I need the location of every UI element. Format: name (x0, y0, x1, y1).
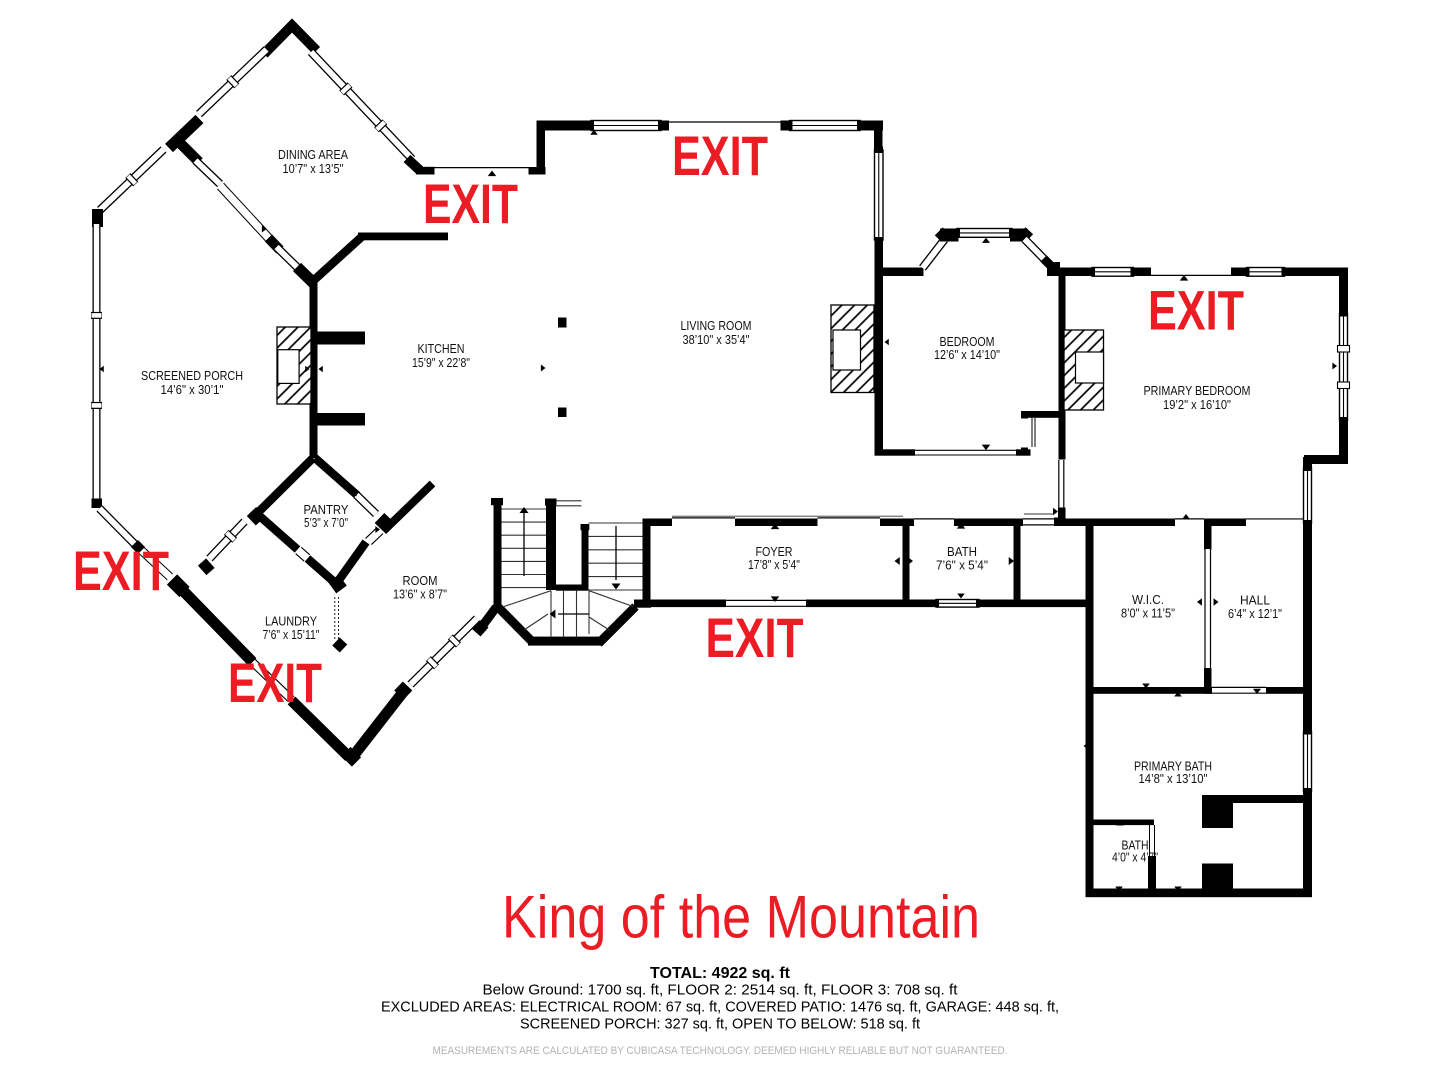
svg-text:DINING AREA: DINING AREA (278, 147, 348, 162)
svg-text:EXIT: EXIT (1148, 279, 1244, 342)
svg-text:12’6" x 14’10": 12’6" x 14’10" (934, 347, 1000, 362)
svg-text:19’2" x 16’10": 19’2" x 16’10" (1163, 397, 1231, 412)
svg-text:4’0" x 4’7": 4’0" x 4’7" (1112, 850, 1158, 865)
svg-text:15’9" x 22’8": 15’9" x 22’8" (412, 355, 470, 370)
svg-text:KITCHEN: KITCHEN (418, 341, 465, 356)
svg-text:EXIT: EXIT (672, 124, 768, 187)
svg-text:PRIMARY BEDROOM: PRIMARY BEDROOM (1144, 383, 1251, 398)
svg-text:8’0" x 11’5": 8’0" x 11’5" (1121, 606, 1175, 621)
svg-text:EXIT: EXIT (228, 651, 322, 714)
svg-text:38’10" x 35’4": 38’10" x 35’4" (683, 332, 750, 347)
svg-text:14’6" x 30’1": 14’6" x 30’1" (161, 382, 224, 397)
svg-text:6’4" x 12’1": 6’4" x 12’1" (1228, 606, 1282, 621)
svg-text:MEASUREMENTS ARE CALCULATED BY: MEASUREMENTS ARE CALCULATED BY CUBICASA … (433, 1045, 1008, 1057)
svg-text:EXIT: EXIT (706, 606, 804, 669)
svg-text:14’8" x 13’10": 14’8" x 13’10" (1139, 771, 1208, 786)
svg-text:LIVING ROOM: LIVING ROOM (681, 318, 752, 333)
svg-text:EXIT: EXIT (423, 172, 518, 235)
svg-text:SCREENED PORCH: SCREENED PORCH (141, 368, 243, 383)
svg-text:Below Ground: 1700 sq. ft, FLO: Below Ground: 1700 sq. ft, FLOOR 2: 2514… (483, 982, 959, 999)
svg-text:EXIT: EXIT (73, 539, 169, 602)
svg-text:SCREENED PORCH: 327 sq. ft, OP: SCREENED PORCH: 327 sq. ft, OPEN TO BELO… (520, 1016, 921, 1033)
svg-text:King of the Mountain: King of the Mountain (502, 884, 980, 951)
svg-text:10’7" x 13’5": 10’7" x 13’5" (283, 161, 344, 176)
svg-text:17’8" x 5’4": 17’8" x 5’4" (748, 557, 800, 572)
svg-text:TOTAL: 4922 sq. ft: TOTAL: 4922 sq. ft (650, 965, 790, 982)
svg-text:13’6" x 8’7": 13’6" x 8’7" (393, 587, 447, 602)
svg-text:5’3" x 7’0": 5’3" x 7’0" (304, 515, 348, 530)
svg-text:7’6" x 5’4": 7’6" x 5’4" (936, 558, 988, 573)
svg-text:EXCLUDED AREAS: ELECTRICAL ROO: EXCLUDED AREAS: ELECTRICAL ROOM: 67 sq. … (381, 999, 1059, 1016)
svg-text:7’6" x 15’11": 7’6" x 15’11" (263, 627, 320, 642)
